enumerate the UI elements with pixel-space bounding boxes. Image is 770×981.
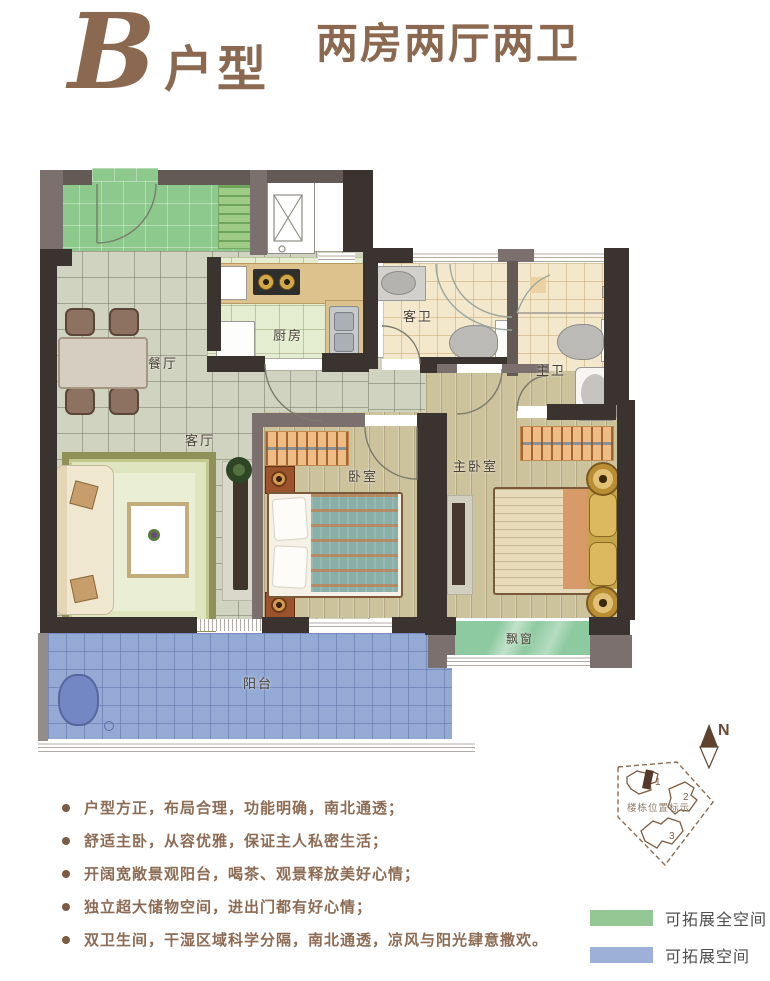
feature-item: 双卫生间，干湿区域科学分隔，南北通透，凉风与阳光肆意撒欢。 xyxy=(62,930,592,951)
building-3-outline xyxy=(641,818,683,848)
bullet-icon xyxy=(62,837,70,845)
legend: 可拓展全空间 可拓展空间 xyxy=(590,906,767,980)
legend-swatch-blue xyxy=(590,947,653,963)
room-label-bedroom: 卧室 xyxy=(348,466,378,485)
feature-text: 开阔宽敞景观阳台，喝茶、观景释放美好心情； xyxy=(84,864,420,885)
plan-letter: B xyxy=(68,0,156,113)
plan-subtitle: 两房两厅两卫 xyxy=(316,10,580,71)
legend-label: 可拓展空间 xyxy=(665,943,750,967)
feature-item: 开阔宽敞景观阳台，喝茶、观景释放美好心情； xyxy=(62,864,592,885)
legend-item-expand-full: 可拓展全空间 xyxy=(590,906,767,930)
feature-text: 舒适主卧，从容优雅，保证主人私密生活； xyxy=(84,831,388,852)
floor-plan: 餐厅 厨房 客厅 客卫 主卫 卧室 主卧室 飘窗 阳台 xyxy=(30,165,690,780)
feature-item: 舒适主卧，从容优雅，保证主人私密生活； xyxy=(62,831,592,852)
room-label-kitchen: 厨房 xyxy=(273,325,303,344)
room-label-balcony: 阳台 xyxy=(243,673,273,692)
site-plan-label: 楼栋位置标示 xyxy=(627,800,690,814)
room-label-bay-window: 飘窗 xyxy=(506,630,534,647)
room-label-guest-bath: 客卫 xyxy=(403,306,433,325)
room-label-master-bedroom: 主卧室 xyxy=(453,456,498,475)
feature-text: 户型方正，布局合理，功能明确，南北通透； xyxy=(84,798,404,819)
bullet-icon xyxy=(62,804,70,812)
building-1-number: 1 xyxy=(655,777,661,788)
feature-list: 户型方正，布局合理，功能明确，南北通透； 舒适主卧，从容优雅，保证主人私密生活；… xyxy=(62,798,592,963)
legend-swatch-green xyxy=(590,910,653,926)
floorplan-page: B 户型 两房两厅两卫 xyxy=(0,0,770,981)
building-3-number: 3 xyxy=(669,831,675,842)
feature-item: 户型方正，布局合理，功能明确，南北通透； xyxy=(62,798,592,819)
feature-item: 独立超大储物空间，进出门都有好心情； xyxy=(62,897,592,918)
feature-text: 独立超大储物空间，进出门都有好心情； xyxy=(84,897,372,918)
room-label-dining: 餐厅 xyxy=(148,353,178,372)
bullet-icon xyxy=(62,936,70,944)
legend-label: 可拓展全空间 xyxy=(665,906,767,930)
building-1-outline xyxy=(627,771,658,794)
room-label-living: 客厅 xyxy=(185,430,215,449)
site-plan: 1 2 3 xyxy=(597,757,729,875)
bullet-icon xyxy=(62,870,70,878)
plan-type-label: 户型 xyxy=(164,30,270,101)
compass-north-label: N xyxy=(718,722,730,740)
bullet-icon xyxy=(62,903,70,911)
legend-item-expand: 可拓展空间 xyxy=(590,943,767,967)
room-label-master-bath: 主卫 xyxy=(536,360,566,379)
feature-text: 双卫生间，干湿区域科学分隔，南北通透，凉风与阳光肆意撒欢。 xyxy=(84,930,548,951)
